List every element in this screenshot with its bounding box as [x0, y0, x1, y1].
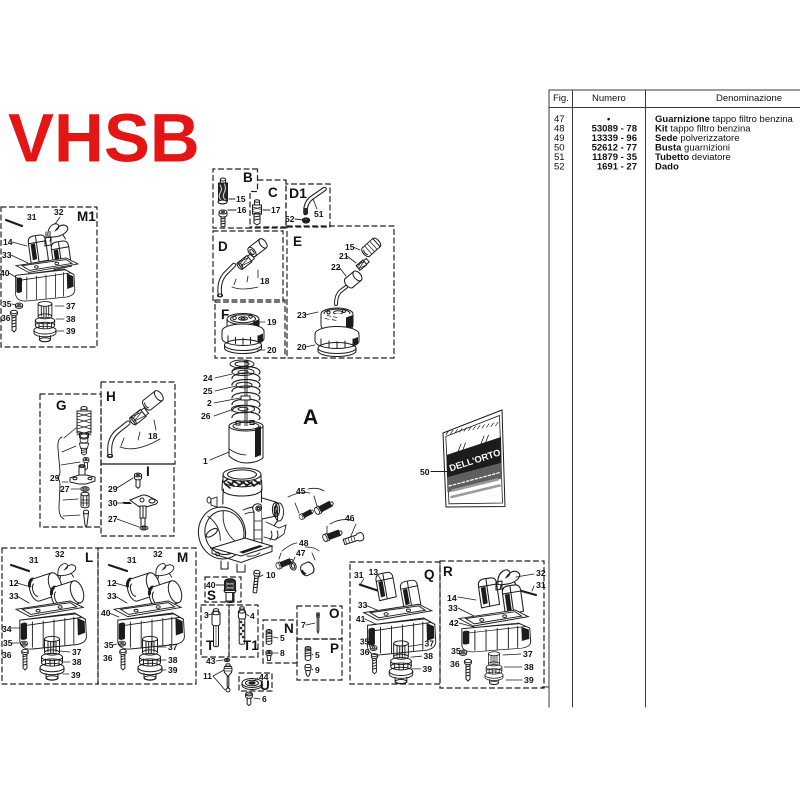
- svg-text:15: 15: [236, 194, 246, 204]
- svg-text:14: 14: [3, 237, 13, 247]
- svg-text:34: 34: [2, 624, 12, 634]
- svg-text:6: 6: [262, 694, 267, 704]
- svg-text:14: 14: [447, 593, 457, 603]
- svg-text:VHSB: VHSB: [8, 100, 200, 177]
- svg-text:37: 37: [72, 647, 82, 657]
- svg-text:45: 45: [296, 486, 306, 496]
- svg-text:U: U: [260, 678, 270, 693]
- svg-text:M: M: [177, 550, 188, 565]
- svg-text:43: 43: [206, 656, 216, 666]
- svg-text:T1: T1: [243, 638, 259, 653]
- svg-text:29: 29: [50, 473, 60, 483]
- svg-text:F: F: [221, 307, 229, 322]
- svg-text:O: O: [329, 606, 340, 621]
- svg-text:T: T: [206, 638, 215, 653]
- svg-text:H: H: [106, 389, 116, 404]
- svg-text:1: 1: [203, 456, 208, 466]
- svg-text:M1: M1: [77, 209, 96, 224]
- svg-text:26: 26: [201, 411, 211, 421]
- svg-text:L: L: [85, 550, 93, 565]
- svg-text:35: 35: [3, 638, 13, 648]
- svg-text:27: 27: [60, 484, 70, 494]
- svg-text:38: 38: [168, 655, 178, 665]
- svg-text:38: 38: [66, 314, 76, 324]
- svg-text:39: 39: [423, 664, 433, 674]
- svg-text:Numero: Numero: [592, 93, 626, 104]
- svg-text:A: A: [303, 406, 318, 429]
- svg-text:39: 39: [524, 675, 534, 685]
- svg-text:37: 37: [425, 638, 435, 648]
- svg-text:33: 33: [2, 250, 12, 260]
- svg-text:32: 32: [54, 207, 64, 217]
- svg-text:46: 46: [345, 513, 355, 523]
- svg-text:I: I: [146, 464, 150, 479]
- svg-text:5: 5: [315, 650, 320, 660]
- svg-text:37: 37: [523, 649, 533, 659]
- svg-text:20: 20: [267, 345, 277, 355]
- svg-text:31: 31: [127, 555, 137, 565]
- svg-text:32: 32: [536, 568, 546, 578]
- svg-text:36: 36: [450, 659, 460, 669]
- svg-text:Dado: Dado: [655, 162, 679, 173]
- svg-text:B: B: [243, 170, 253, 185]
- svg-text:35: 35: [451, 646, 461, 656]
- svg-text:N: N: [284, 621, 294, 636]
- svg-text:8: 8: [280, 648, 285, 658]
- svg-text:C: C: [268, 185, 278, 200]
- svg-text:Fig.: Fig.: [553, 93, 569, 104]
- svg-text:17: 17: [271, 205, 281, 215]
- svg-text:52: 52: [285, 214, 295, 224]
- svg-text:32: 32: [153, 549, 163, 559]
- svg-text:35: 35: [360, 636, 370, 646]
- svg-text:11: 11: [203, 671, 212, 681]
- svg-text:38: 38: [424, 651, 434, 661]
- svg-text:9: 9: [315, 665, 320, 675]
- svg-text:18: 18: [148, 431, 158, 441]
- svg-text:P: P: [330, 641, 339, 656]
- svg-text:37: 37: [66, 301, 76, 311]
- svg-text:Q: Q: [424, 567, 435, 582]
- svg-text:18: 18: [260, 276, 270, 286]
- svg-text:50: 50: [420, 467, 430, 477]
- svg-text:32: 32: [55, 549, 65, 559]
- svg-text:31: 31: [536, 580, 546, 590]
- svg-text:42: 42: [449, 618, 459, 628]
- svg-text:31: 31: [29, 555, 39, 565]
- svg-text:37: 37: [168, 642, 178, 652]
- svg-text:16: 16: [237, 205, 247, 215]
- svg-text:31: 31: [354, 570, 364, 580]
- svg-text:36: 36: [1, 313, 11, 323]
- svg-text:2: 2: [207, 398, 212, 408]
- svg-text:38: 38: [524, 662, 534, 672]
- svg-text:13: 13: [369, 567, 379, 577]
- svg-text:39: 39: [66, 326, 76, 336]
- svg-text:E: E: [293, 234, 302, 249]
- svg-text:39: 39: [168, 665, 178, 675]
- svg-text:Denominazione: Denominazione: [716, 93, 782, 104]
- svg-text:G: G: [56, 398, 67, 413]
- svg-text:S: S: [207, 588, 216, 603]
- svg-text:36: 36: [2, 650, 12, 660]
- svg-text:4: 4: [250, 611, 255, 621]
- svg-text:10: 10: [266, 570, 276, 580]
- svg-text:36: 36: [360, 647, 370, 657]
- svg-text:7: 7: [301, 620, 306, 630]
- svg-text:29: 29: [108, 484, 118, 494]
- svg-text:27: 27: [108, 514, 118, 524]
- svg-text:33: 33: [448, 603, 458, 613]
- svg-text:47: 47: [296, 548, 306, 558]
- svg-text:24: 24: [203, 373, 213, 383]
- svg-text:35: 35: [2, 299, 12, 309]
- svg-text:38: 38: [72, 657, 82, 667]
- svg-text:40: 40: [0, 268, 10, 278]
- svg-text:D: D: [218, 239, 228, 254]
- svg-text:R: R: [443, 564, 453, 579]
- svg-text:39: 39: [71, 670, 81, 680]
- svg-text:36: 36: [103, 653, 113, 663]
- svg-text:19: 19: [267, 317, 277, 327]
- svg-text:25: 25: [203, 386, 213, 396]
- svg-text:1691 - 27: 1691 - 27: [597, 162, 637, 173]
- svg-text:51: 51: [314, 209, 324, 219]
- svg-text:52: 52: [554, 162, 565, 173]
- svg-text:41: 41: [356, 614, 366, 624]
- svg-text:31: 31: [27, 212, 37, 222]
- svg-text:D1: D1: [289, 185, 307, 201]
- svg-text:30: 30: [108, 498, 118, 508]
- svg-text:48: 48: [299, 538, 309, 548]
